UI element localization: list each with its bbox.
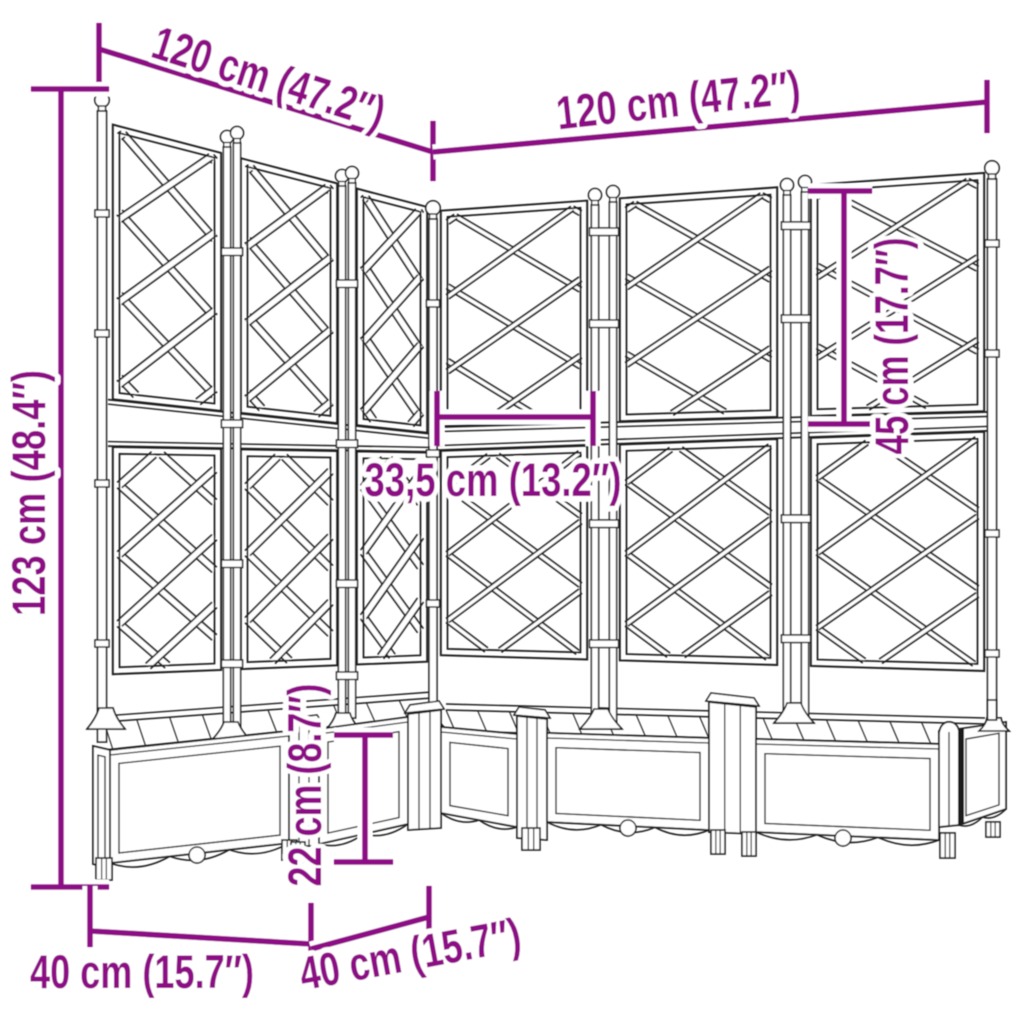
svg-text:40 cm (15.7″): 40 cm (15.7″) (30, 945, 254, 998)
svg-text:33,5 cm (13.2″): 33,5 cm (13.2″) (365, 453, 622, 506)
svg-text:123 cm (48.4″): 123 cm (48.4″) (2, 370, 55, 616)
svg-text:45 cm (17.7″): 45 cm (17.7″) (865, 238, 918, 455)
svg-text:22 cm (8.7″): 22 cm (8.7″) (278, 684, 331, 887)
